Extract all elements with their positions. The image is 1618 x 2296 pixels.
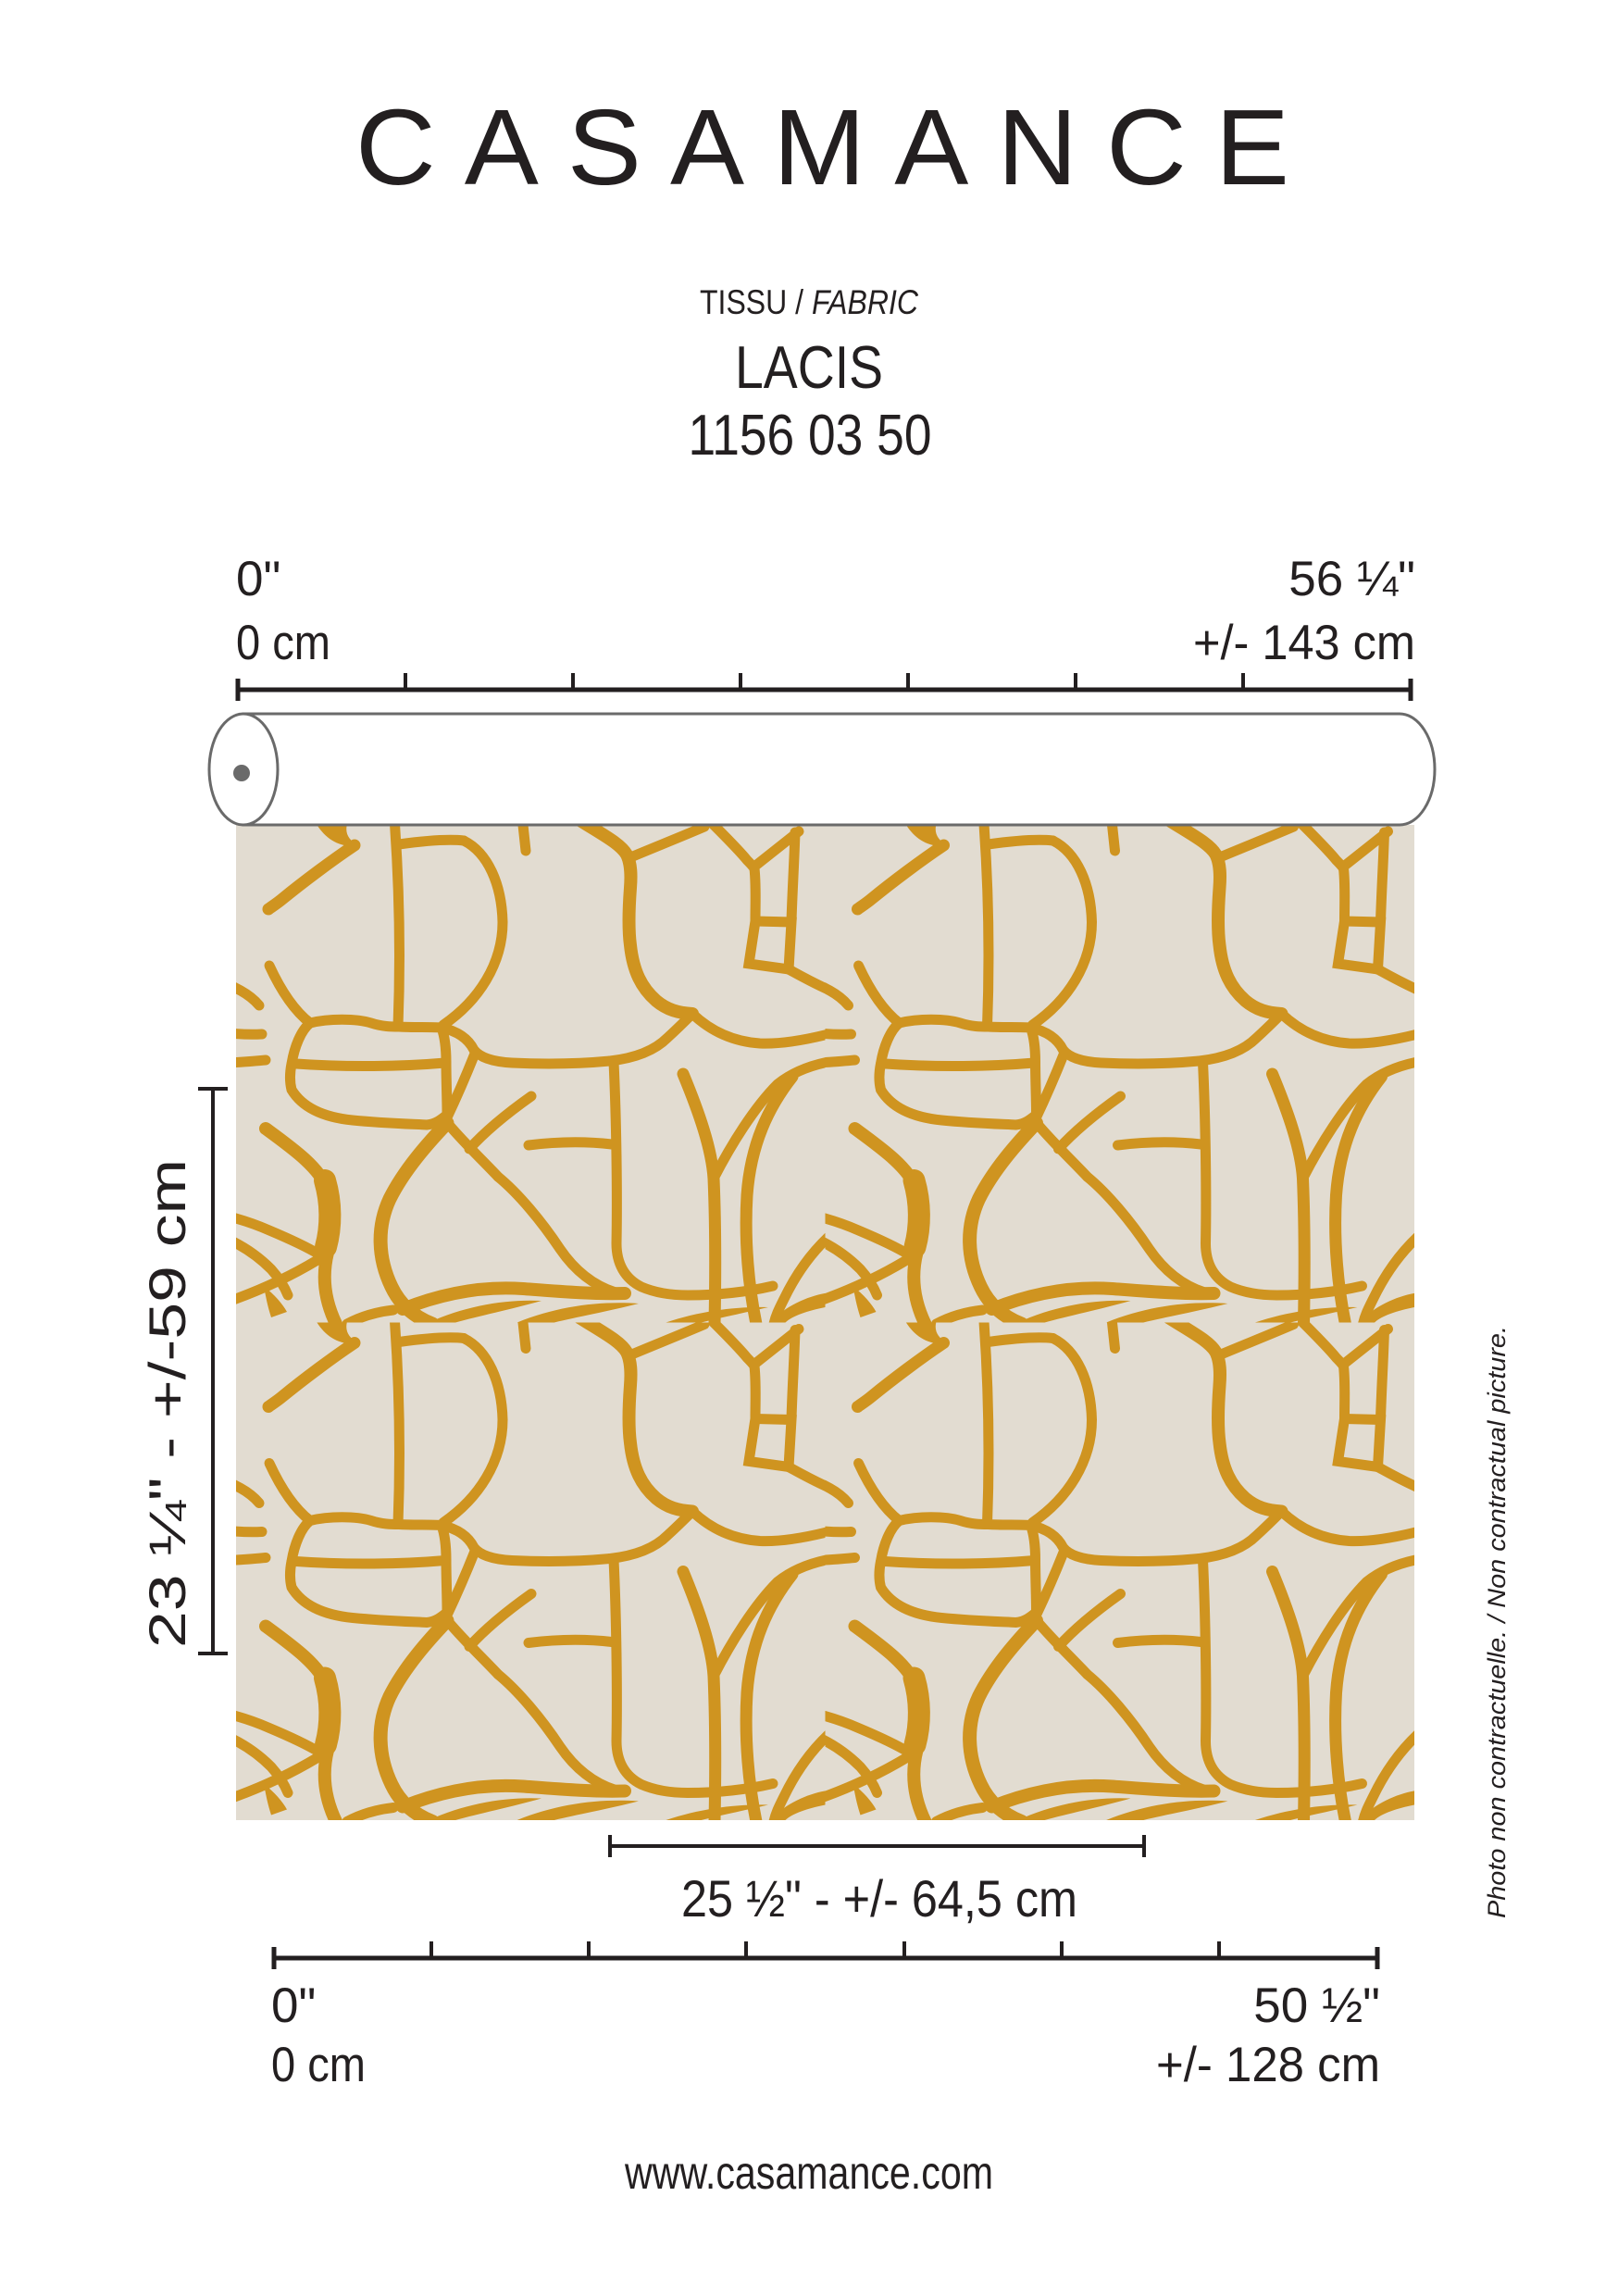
svg-text:+/- 143 cm: +/- 143 cm — [1193, 616, 1415, 670]
svg-text:+/- 128 cm: +/- 128 cm — [1156, 2038, 1380, 2092]
svg-text:50 ½": 50 ½" — [1253, 1978, 1380, 2033]
svg-text:0": 0" — [236, 552, 280, 606]
svg-text:TISSU / FABRIC: TISSU / FABRIC — [700, 283, 918, 321]
svg-text:0 cm: 0 cm — [236, 616, 330, 670]
svg-text:0 cm: 0 cm — [271, 2038, 366, 2092]
svg-text:23 ¼" - +/-59 cm: 23 ¼" - +/-59 cm — [138, 1159, 196, 1648]
svg-text:www.casamance.com: www.casamance.com — [624, 2147, 993, 2199]
svg-text:25 ½" - +/- 64,5 cm: 25 ½" - +/- 64,5 cm — [681, 1869, 1077, 1928]
svg-text:Photo non contractuelle. / Non: Photo non contractuelle. / Non contractu… — [1483, 1326, 1511, 1918]
svg-text:LACIS: LACIS — [735, 333, 883, 401]
svg-text:CASAMANCE: CASAMANCE — [355, 87, 1318, 207]
svg-text:1156 03 50: 1156 03 50 — [689, 404, 932, 468]
svg-text:56 ¼": 56 ¼" — [1288, 552, 1415, 606]
svg-text:0": 0" — [271, 1978, 316, 2033]
